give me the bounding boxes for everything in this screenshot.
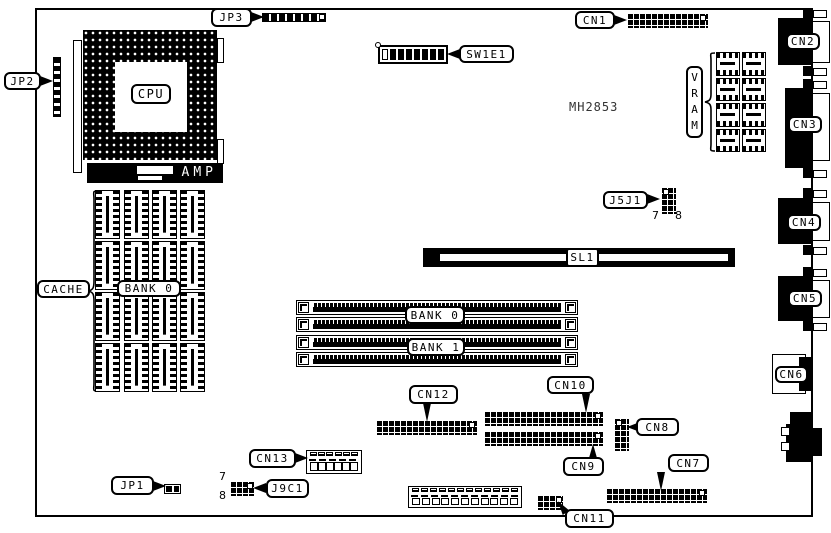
cn1-label: CN1 [575,11,615,29]
dip-switch-cell [398,49,404,60]
cn13-connector [306,450,362,474]
connector-hole-row [310,462,358,471]
cn2-mount-screw [813,10,827,18]
cn1-pin1-marker [700,15,706,21]
cn7-callout-tail [657,472,665,491]
connector-tab [457,488,464,492]
cn9-pin-header [485,432,603,446]
cn3-label: CN3 [788,116,822,133]
connector-hole [471,498,479,505]
cn5-label: CN5 [788,290,822,307]
connector-tab-row [310,452,358,457]
simm-bank1-label: BANK 1 [407,338,465,356]
cn11-label: CN11 [565,509,614,528]
connector-hole [500,498,508,505]
regulator-window-small [138,176,162,180]
cn12-label: CN12 [409,385,458,404]
cn7-pin-header [607,489,707,503]
memory-chip [742,103,766,127]
cn4-label: CN4 [787,214,821,231]
connector-tab [430,488,437,492]
connector-tab [502,488,509,492]
cn13-callout-tail [295,453,308,463]
jp3-pin1-marker [319,14,325,20]
audio-jack-body [786,424,813,462]
audio-jack-top [790,412,813,424]
simm-latch-left [298,319,309,330]
memory-chip [152,190,177,239]
simm-bank0-label: BANK 0 [405,306,465,324]
vram-chip-column [716,52,740,152]
cn4-mount-screw [813,190,827,198]
j9c1-label: J9C1 [266,479,309,498]
sl1-label: SL1 [566,248,599,267]
cn10-callout-tail [582,394,590,413]
connector-hole [432,498,440,505]
cn7-label: CN7 [668,454,709,472]
simm-latch-right [565,354,576,365]
connector-tab [310,452,317,456]
cpu-socket-tab-top [217,38,224,63]
jp2-label: JP2 [4,72,41,90]
memory-chip [716,78,740,102]
sw1e1-pin1-dot [375,42,381,48]
simm-latch-left [298,354,309,365]
cn9-label: CN9 [563,457,604,476]
motherboard-diagram: CPU AMP CACHE BANK 0 JP2 JP3 SW1E1 CN1 M… [0,0,831,533]
audio-jack-hole [781,427,790,436]
j5j1-label: J5J1 [603,191,648,209]
j5j1-callout-tail [647,194,660,204]
j5j1-pin7-number: 7 [652,210,659,221]
cn3-mount-screw [813,170,827,178]
j5j1-pin8-number: 8 [675,210,682,221]
dip-switch-cell [390,49,396,60]
connector-tab [475,488,482,492]
sw1e1-label: SW1E1 [459,45,514,63]
simm-contacts [313,355,561,364]
regulator-window [137,166,173,174]
cn12-pin-header [377,421,477,435]
j9c1-pin8-number: 8 [219,490,226,501]
memory-chip [716,129,740,153]
connector-tab [412,488,419,492]
connector-tab [448,488,455,492]
cn1-pin-header [628,14,708,28]
memory-chip [742,78,766,102]
connector-tab [351,452,358,456]
memory-chip [742,129,766,153]
connector-hole [510,498,518,505]
memory-chip [95,292,120,341]
jp1-callout-tail [153,481,166,491]
memory-chip [95,241,120,290]
connector-hole [334,462,342,471]
connector-tab [343,452,350,456]
board-part-number: MH2853 [569,101,618,113]
dip-switch-cell [382,49,388,60]
connector-tab [439,488,446,492]
memory-chip [152,292,177,341]
memory-chip [95,343,120,392]
memory-chip [180,241,205,290]
jp1-pin [166,486,172,492]
connector-tab [318,452,325,456]
connector-tab [335,452,342,456]
connector-tab [493,488,500,492]
jp1-jumper-block [164,484,181,494]
cn1-callout-tail [614,15,627,25]
memory-chip [124,343,149,392]
connector-divider [411,495,519,497]
cn2-mount-tab [803,66,813,76]
audio-jack-bump [813,428,822,456]
connector-tab [466,488,473,492]
cpu-socket-lever-bar [73,40,82,173]
dip-switch-cell [438,49,444,60]
cn8-pin1-marker [616,420,622,426]
jp3-callout-tail [251,12,264,22]
dip-switch-cell [422,49,428,60]
cn4-mount-screw [813,247,827,255]
cn5-mount-tab [803,321,813,331]
cn4-mount-tab [803,245,813,255]
cn12-callout-tail [423,403,431,422]
connector-hole [441,498,449,505]
memory-chip [124,190,149,239]
simm-latch-right [565,319,576,330]
memory-chip [180,190,205,239]
cn5-mount-screw [813,323,827,331]
cn10-label: CN10 [547,376,594,394]
memory-chip [716,103,740,127]
connector-hole [461,498,469,505]
cache-bank0-label: BANK 0 [117,280,181,297]
cn7-pin1-marker [699,490,705,496]
cpu-socket-tab-bottom [217,139,224,164]
jp1-pin [174,486,180,492]
cn9-callout-tail [589,444,597,458]
connector-hole [318,462,326,471]
power-connector [408,486,522,508]
voltage-regulator-module: AMP [87,163,223,183]
connector-hole [412,498,420,505]
connector-hole [342,462,350,471]
cn13-label: CN13 [249,449,296,468]
cn4-mount-tab [803,188,813,198]
connector-tab-row [412,488,518,493]
vram-chip-column [742,52,766,152]
cn2-mount-tab [803,8,813,18]
vram-brace [703,51,716,153]
jp1-label: JP1 [111,476,154,495]
cn6-label: CN6 [775,366,808,383]
jp2-callout-tail [40,76,53,86]
jp2-jumper-block [53,57,61,117]
connector-tab [484,488,491,492]
j5j1-pin1-marker [663,189,669,195]
jp3-label: JP3 [211,8,252,27]
memory-chip [180,292,205,341]
memory-chip [124,292,149,341]
memory-chip [716,52,740,76]
sw1e1-dip-switch [378,45,448,64]
cn10-pin1-marker [595,413,601,419]
connector-hole [310,462,318,471]
simm-latch-left [298,337,309,348]
simm-latch-left [298,302,309,313]
dip-switch-cell [406,49,412,60]
memory-chip [95,190,120,239]
connector-tab [511,488,518,492]
cn2-label: CN2 [786,33,820,50]
memory-chip [180,343,205,392]
vram-label: VRAM [686,66,703,138]
audio-jack-hole [781,442,790,451]
connector-hole [490,498,498,505]
memory-chip [742,52,766,76]
connector-tab [326,452,333,456]
cn12-pin1-marker [469,422,475,428]
amp-brand-text: AMP [182,166,217,179]
cn3-mount-tab [803,168,813,178]
j9c1-pin7-number: 7 [219,471,226,482]
connector-hole [451,498,459,505]
cn2-mount-screw [813,68,827,76]
cn8-label: CN8 [636,418,679,436]
dip-switch-cell [414,49,420,60]
memory-chip [152,343,177,392]
j9c1-callout-tail [253,483,266,493]
cn3-mount-screw [813,81,827,89]
jp3-jumper-block [262,13,326,22]
cn10-pin-header [485,412,603,426]
connector-hole [350,462,358,471]
simm-latch-right [565,337,576,348]
cn9-pin1-marker [595,433,601,439]
dip-switch-cell [430,49,436,60]
cache-label: CACHE [37,280,90,298]
connector-hole-row [412,498,518,505]
cpu-label: CPU [131,84,171,104]
cn5-mount-screw [813,269,827,277]
simm-latch-right [565,302,576,313]
connector-hole [422,498,430,505]
connector-hole [481,498,489,505]
connector-hole [326,462,334,471]
cache-chip-column [180,190,205,392]
connector-divider [309,459,359,461]
connector-tab [421,488,428,492]
